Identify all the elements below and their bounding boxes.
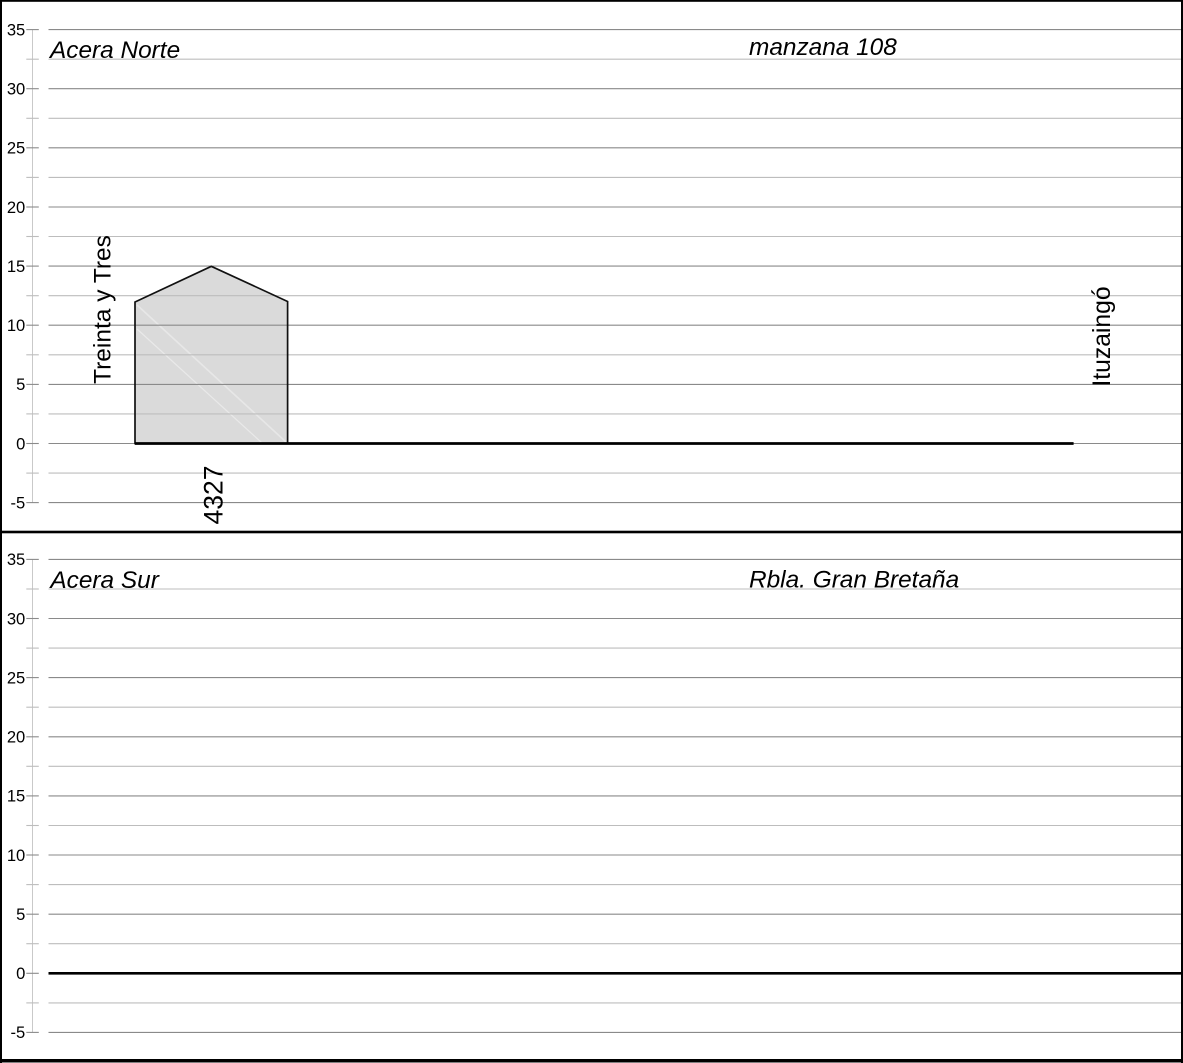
svg-text:Acera Sur: Acera Sur <box>48 567 159 594</box>
svg-text:Treinta y Tres: Treinta y Tres <box>89 235 116 384</box>
svg-text:20: 20 <box>7 728 25 747</box>
svg-text:0: 0 <box>16 964 25 983</box>
svg-text:-5: -5 <box>11 493 26 512</box>
svg-text:15: 15 <box>7 257 25 276</box>
svg-text:5: 5 <box>16 375 25 394</box>
svg-text:0: 0 <box>16 434 25 453</box>
svg-text:25: 25 <box>7 139 25 158</box>
svg-text:10: 10 <box>7 316 25 335</box>
svg-text:4327: 4327 <box>199 466 229 525</box>
svg-text:30: 30 <box>7 80 25 99</box>
svg-text:30: 30 <box>7 609 25 628</box>
svg-text:-5: -5 <box>11 1023 26 1042</box>
svg-text:15: 15 <box>7 787 25 806</box>
svg-text:25: 25 <box>7 668 25 687</box>
svg-text:35: 35 <box>7 20 25 39</box>
svg-text:5: 5 <box>16 905 25 924</box>
svg-text:20: 20 <box>7 198 25 217</box>
svg-text:10: 10 <box>7 846 25 865</box>
svg-text:Acera Norte: Acera Norte <box>48 37 180 64</box>
svg-text:35: 35 <box>7 550 25 569</box>
svg-text:Ituzaingó: Ituzaingó <box>1089 286 1116 386</box>
svg-text:Rbla. Gran Bretaña: Rbla. Gran Bretaña <box>749 567 959 594</box>
svg-text:manzana 108: manzana 108 <box>749 34 897 61</box>
